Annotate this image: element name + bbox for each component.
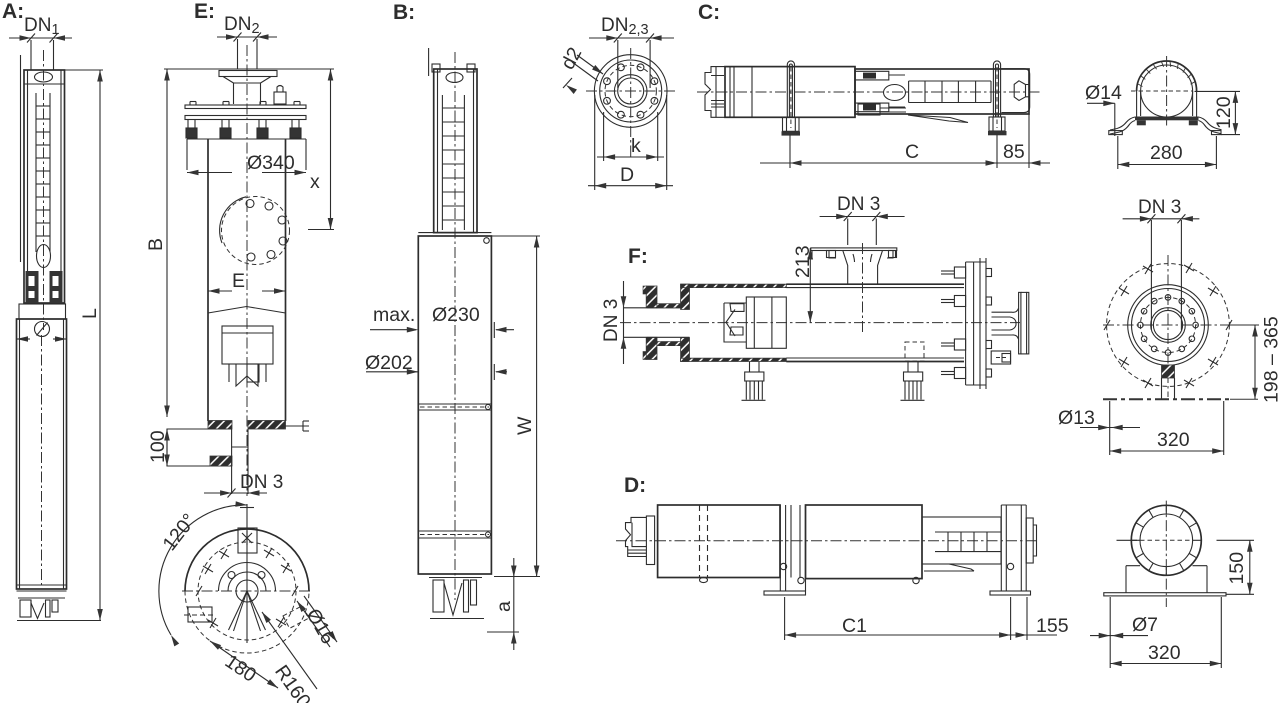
svg-text:155: 155 <box>1036 615 1069 637</box>
svg-text:DN 3: DN 3 <box>240 472 283 493</box>
svg-text:F:: F: <box>628 245 648 268</box>
svg-text:C: C <box>905 141 919 163</box>
svg-text:W: W <box>514 416 536 435</box>
svg-text:B:: B: <box>393 1 415 24</box>
svg-text:E: E <box>232 270 245 292</box>
svg-text:a: a <box>493 601 515 612</box>
svg-text:C1: C1 <box>842 615 867 637</box>
svg-text:DN 3: DN 3 <box>601 299 622 342</box>
svg-text:D: D <box>620 164 634 186</box>
svg-text:Ø230: Ø230 <box>432 304 480 326</box>
svg-text:Ø7: Ø7 <box>1132 614 1158 636</box>
svg-text:Ø13: Ø13 <box>1058 407 1095 429</box>
svg-text:DN 3: DN 3 <box>1138 197 1181 218</box>
svg-text:280: 280 <box>1150 142 1183 164</box>
svg-text:Ø202: Ø202 <box>365 352 413 374</box>
svg-text:max.: max. <box>373 304 415 326</box>
svg-text:A:: A: <box>2 0 24 23</box>
svg-text:k: k <box>631 135 641 157</box>
svg-text:C:: C: <box>698 1 720 24</box>
svg-text:213: 213 <box>792 245 814 278</box>
svg-text:150: 150 <box>1226 552 1248 585</box>
svg-text:320: 320 <box>1148 642 1181 664</box>
svg-text:85: 85 <box>1003 141 1025 163</box>
svg-text:L: L <box>79 308 101 319</box>
svg-text:Ø340: Ø340 <box>247 152 295 174</box>
svg-text:E:: E: <box>194 0 215 23</box>
svg-text:320: 320 <box>1157 429 1190 451</box>
svg-text:D:: D: <box>624 474 646 497</box>
svg-text:x: x <box>310 171 320 193</box>
svg-text:120: 120 <box>1213 96 1235 129</box>
svg-text:DN 3: DN 3 <box>837 194 880 215</box>
svg-text:B: B <box>145 238 167 251</box>
svg-text:198 – 365: 198 – 365 <box>1261 316 1280 403</box>
